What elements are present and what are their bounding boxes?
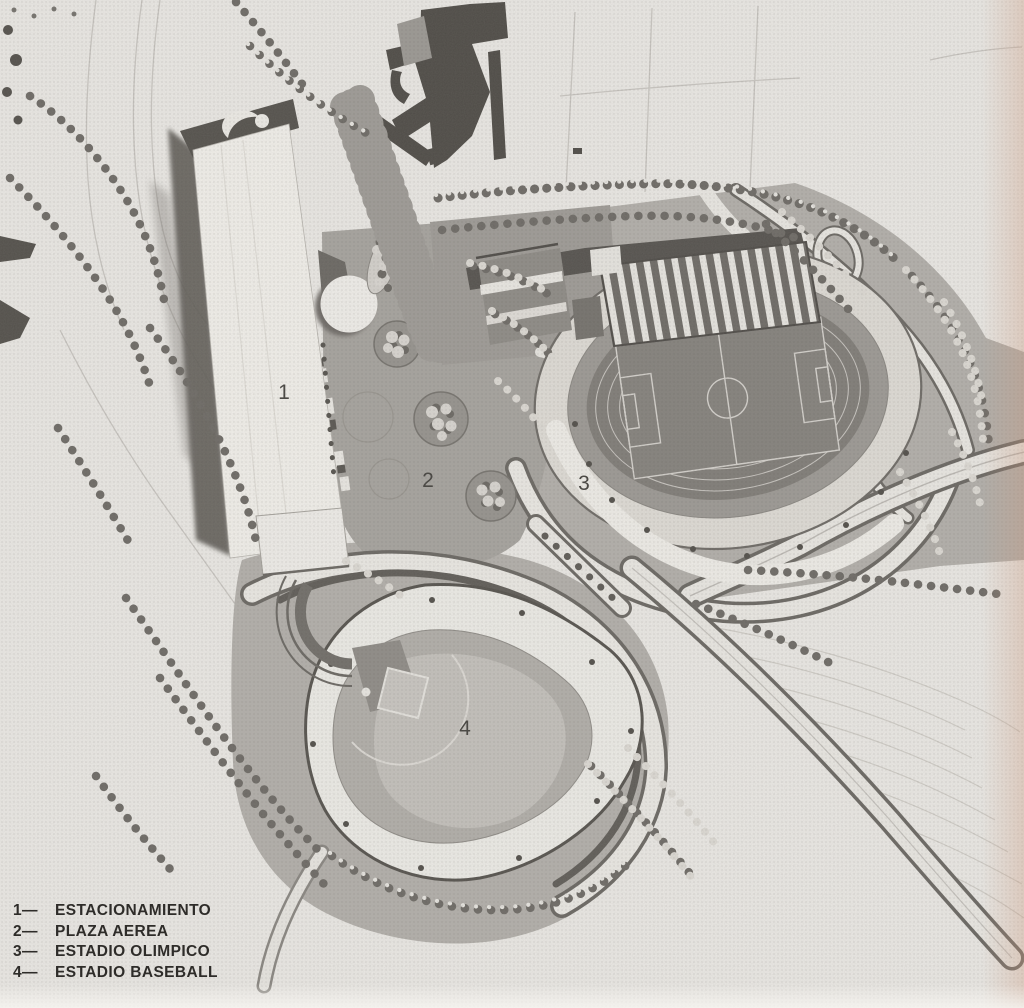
legend-item-estadio-olimpico: 3—ESTADIO OLIMPICO [13,942,218,963]
legend-item-label: ESTACIONAMIENTO [55,902,211,919]
legend-item-label: ESTADIO OLIMPICO [55,943,210,960]
legend-item-label: PLAZA AEREA [55,923,168,940]
legend-item-number: 4— [13,963,55,984]
legend: 1—ESTACIONAMIENTO 2—PLAZA AEREA 3—ESTADI… [13,901,218,983]
site-plan-illustration: 1 2 3 4 [0,0,1024,1008]
legend-item-plaza-aerea: 2—PLAZA AEREA [13,922,218,943]
print-grain-overlay [0,0,1024,1008]
legend-item-estadio-baseball: 4—ESTADIO BASEBALL [13,963,218,984]
legend-item-number: 3— [13,942,55,963]
legend-item-number: 1— [13,901,55,922]
legend-item-estacionamiento: 1—ESTACIONAMIENTO [13,901,218,922]
scanned-site-plan-page: 1 2 3 4 1—ESTACIONAMIENTO 2—PLAZA AEREA … [0,0,1024,1008]
legend-item-number: 2— [13,922,55,943]
legend-item-label: ESTADIO BASEBALL [55,964,218,981]
